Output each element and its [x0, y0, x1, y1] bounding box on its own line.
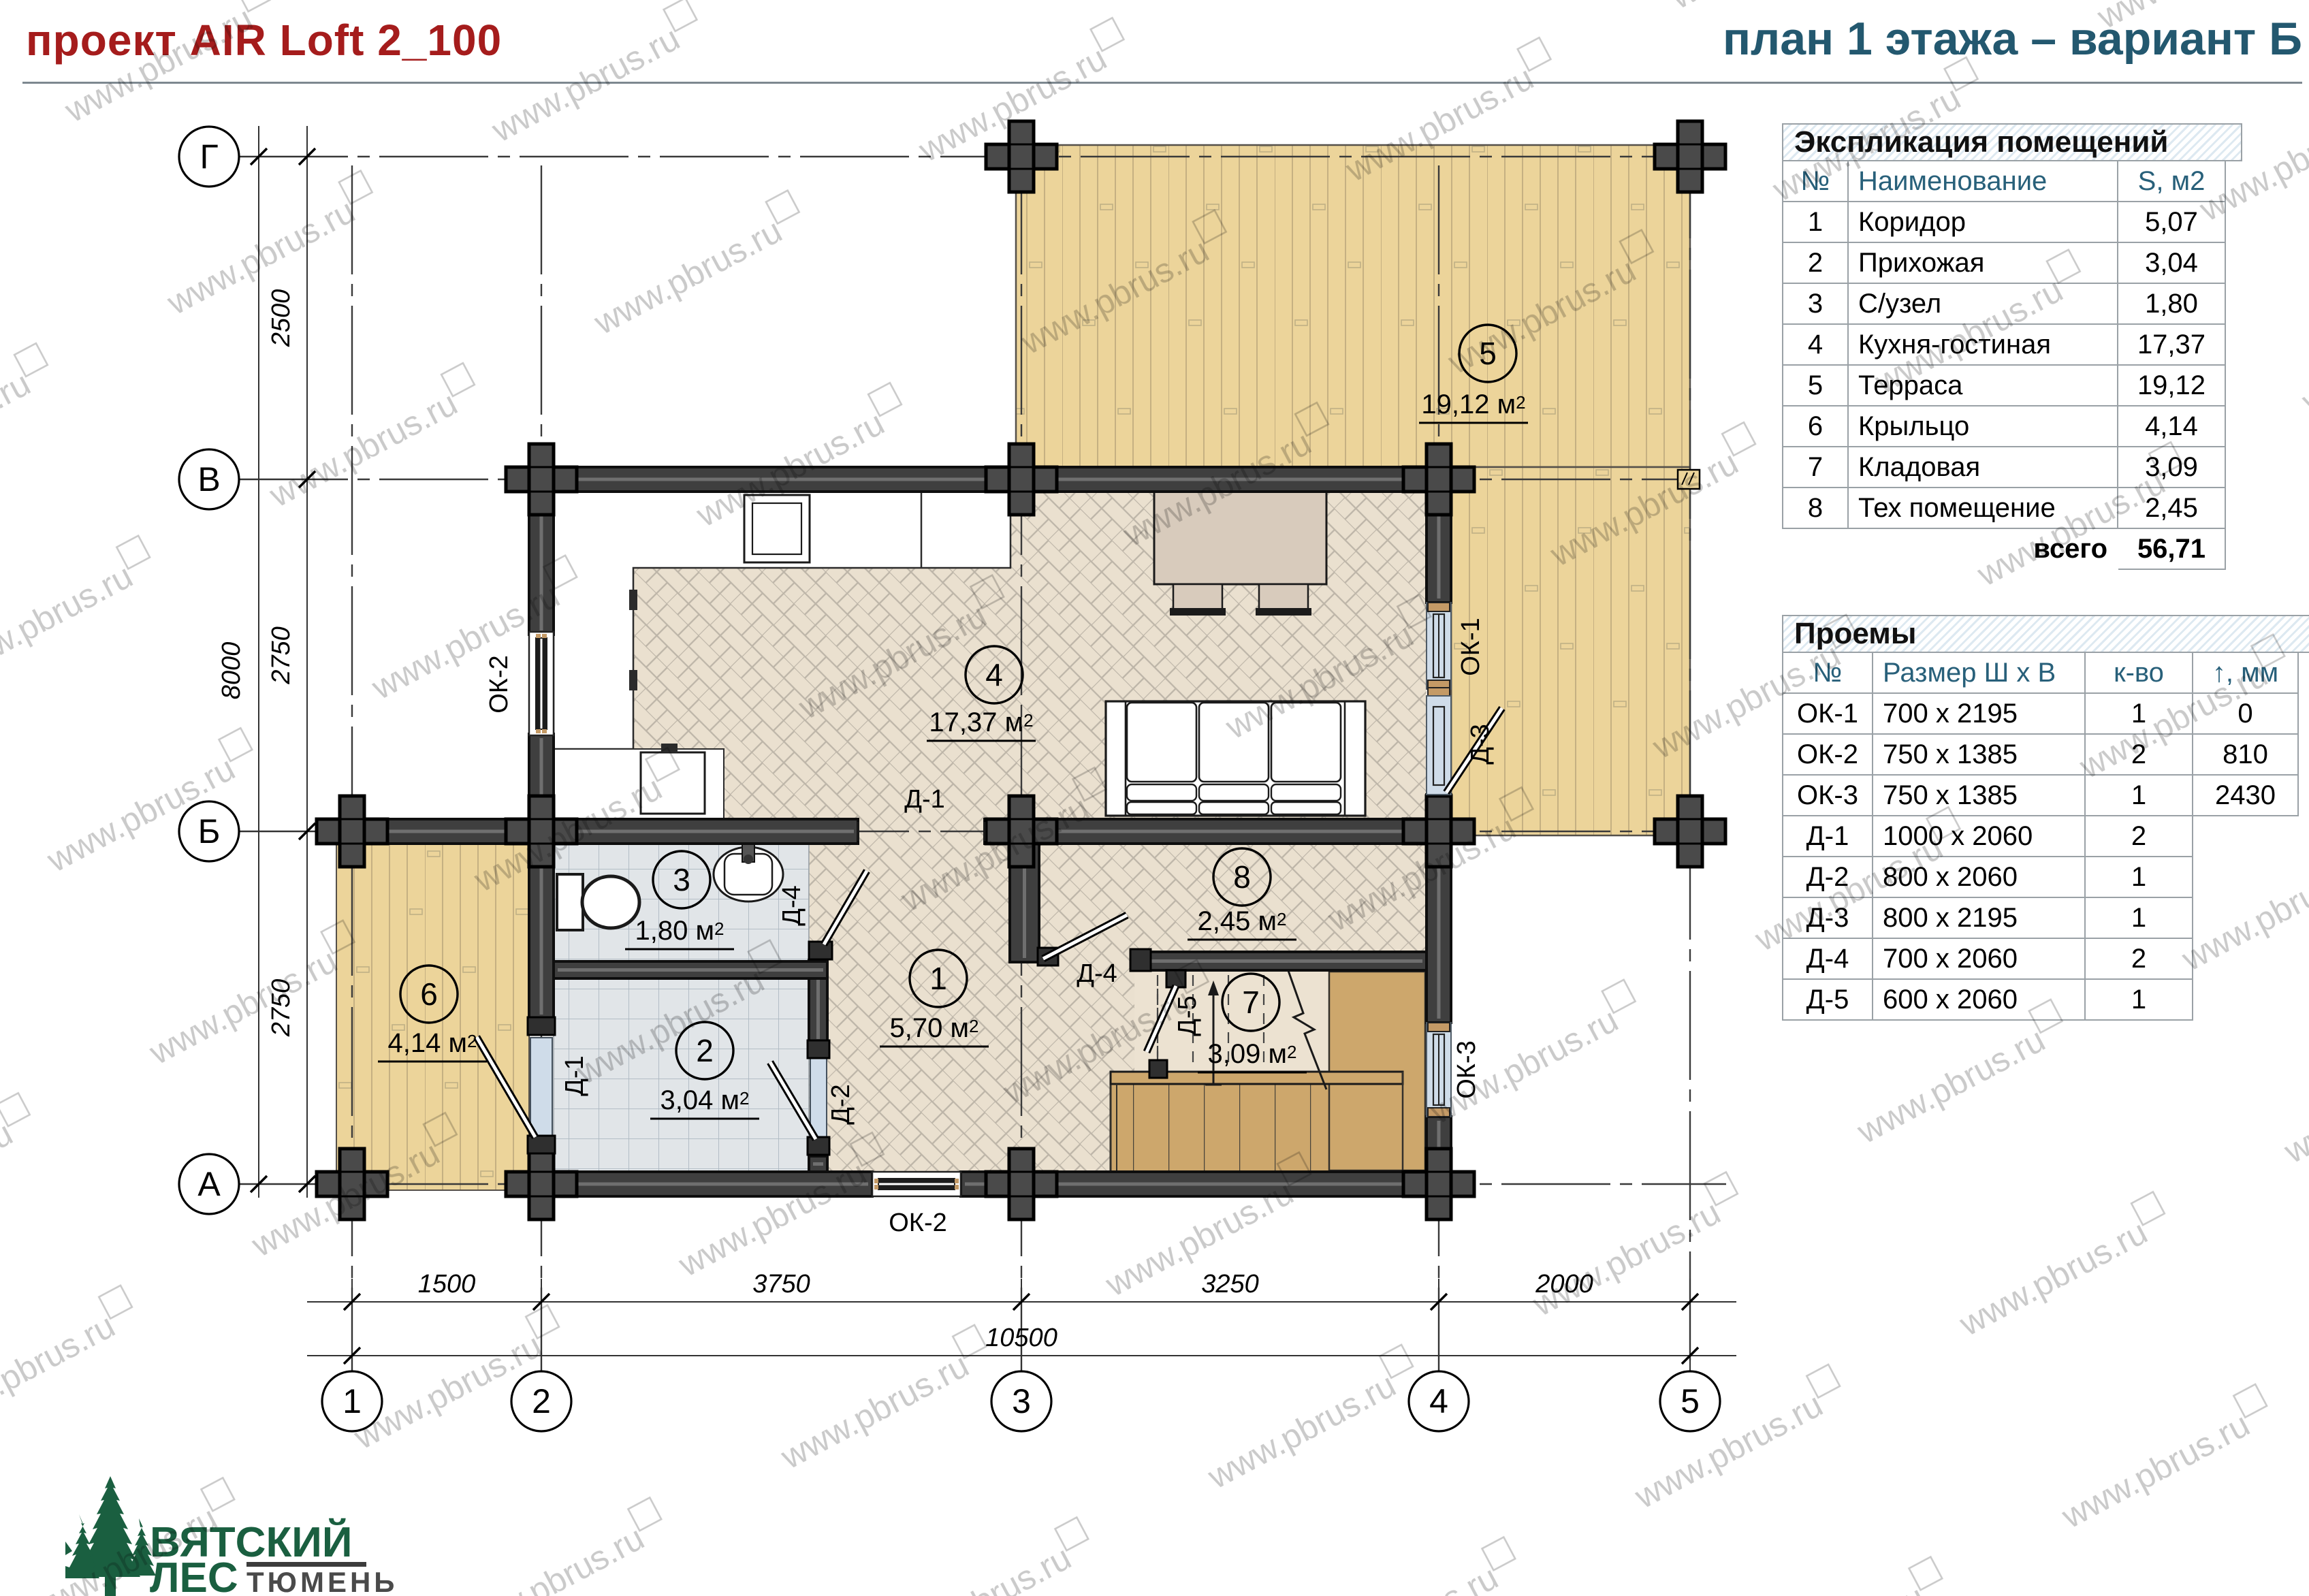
svg-text:10500: 10500: [985, 1324, 1057, 1352]
svg-text:Б: Б: [198, 812, 221, 850]
svg-text:Д-4: Д-4: [1077, 959, 1117, 988]
svg-text:7: 7: [1242, 985, 1260, 1020]
svg-text:1,80 м2: 1,80 м2: [635, 916, 724, 946]
svg-text:2750: 2750: [267, 979, 296, 1038]
svg-text:Д-1: Д-1: [904, 785, 945, 814]
svg-text:17,37 м2: 17,37 м2: [929, 707, 1033, 737]
svg-text:8: 8: [1233, 859, 1251, 895]
svg-text:8000: 8000: [217, 642, 246, 700]
svg-text:4: 4: [985, 657, 1003, 692]
svg-text:4: 4: [1429, 1382, 1448, 1420]
svg-text:3,04 м2: 3,04 м2: [660, 1085, 750, 1115]
svg-text:3,09 м2: 3,09 м2: [1208, 1039, 1297, 1069]
svg-text:5: 5: [1681, 1382, 1700, 1420]
svg-text:ОК-1: ОК-1: [1456, 618, 1485, 675]
svg-text:2: 2: [532, 1382, 551, 1420]
svg-text:2,45 м2: 2,45 м2: [1198, 906, 1287, 936]
svg-text:1500: 1500: [418, 1270, 476, 1298]
svg-text:1: 1: [929, 961, 947, 996]
svg-text:Д-1: Д-1: [560, 1055, 589, 1096]
svg-text:1: 1: [343, 1382, 362, 1420]
svg-text:5,70 м2: 5,70 м2: [890, 1013, 979, 1043]
svg-text:3: 3: [673, 862, 690, 897]
svg-text:3: 3: [1012, 1382, 1031, 1420]
svg-text:ОК-2: ОК-2: [485, 655, 513, 713]
svg-text:3750: 3750: [752, 1270, 810, 1298]
svg-text:Д-2: Д-2: [827, 1084, 855, 1125]
svg-text:Д-3: Д-3: [1466, 724, 1495, 765]
svg-text:2500: 2500: [267, 289, 296, 348]
svg-text:Д-4: Д-4: [778, 885, 806, 926]
svg-text:Г: Г: [200, 138, 218, 176]
svg-text:В: В: [197, 460, 220, 498]
svg-text:ОК-3: ОК-3: [1452, 1040, 1481, 1098]
svg-text:ЛЕС: ЛЕС: [150, 1554, 238, 1596]
svg-text:А: А: [197, 1165, 221, 1203]
svg-text:2750: 2750: [267, 626, 296, 685]
svg-text:4,14 м2: 4,14 м2: [388, 1028, 477, 1058]
svg-text:Д-5: Д-5: [1173, 995, 1202, 1036]
svg-text:2000: 2000: [1535, 1270, 1593, 1298]
svg-text:6: 6: [420, 976, 438, 1012]
svg-text:3250: 3250: [1201, 1270, 1259, 1298]
svg-text:5: 5: [1479, 336, 1497, 371]
svg-text:ТЮМЕНЬ: ТЮМЕНЬ: [246, 1566, 398, 1596]
svg-text:ОК-2: ОК-2: [889, 1209, 946, 1237]
svg-text:2: 2: [696, 1033, 714, 1068]
svg-text:19,12 м2: 19,12 м2: [1421, 389, 1525, 419]
